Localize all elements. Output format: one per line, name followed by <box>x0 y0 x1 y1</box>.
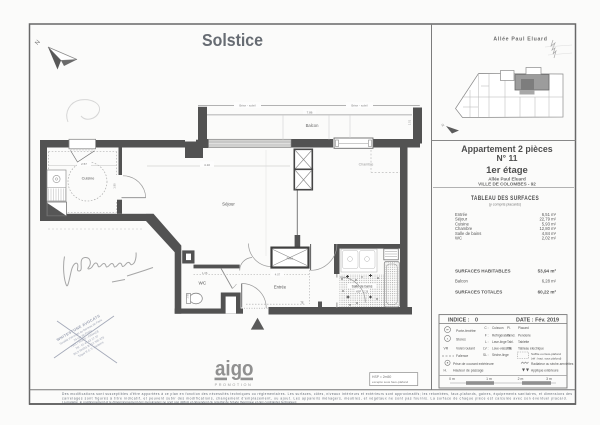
svg-text:DATE : Fév. 2019: DATE : Fév. 2019 <box>516 318 559 324</box>
svg-text:Hauteur de passage: Hauteur de passage <box>453 369 484 373</box>
svg-text:2.57: 2.57 <box>81 162 87 166</box>
svg-text:1er étage: 1er étage <box>486 165 528 176</box>
svg-text:WC: WC <box>199 280 207 285</box>
svg-text:Pend.: Pend. <box>287 257 294 261</box>
svg-text:excepté sous faux-plafond: excepté sous faux-plafond <box>372 380 408 384</box>
svg-text:53,94 m²: 53,94 m² <box>538 269 557 274</box>
svg-text:Tableau électrique: Tableau électrique <box>518 347 544 351</box>
svg-text:Stores: Stores <box>456 338 466 342</box>
svg-text:Lave-linge: Lave-linge <box>492 340 507 344</box>
svg-text:C :: C : <box>484 326 488 330</box>
svg-text:7.86: 7.86 <box>307 111 313 115</box>
svg-text:Salle de bains: Salle de bains <box>352 285 373 289</box>
svg-text:HSP = 2m50: HSP = 2m50 <box>372 375 391 379</box>
svg-text:60,22 m²: 60,22 m² <box>538 290 557 295</box>
svg-text:3 m: 3 m <box>546 377 552 381</box>
svg-text:SURFACES HABITABLES: SURFACES HABITABLES <box>455 269 511 274</box>
svg-text:Sèche-linge: Sèche-linge <box>492 353 509 357</box>
svg-text:Radiateur ou sèche-serviettes: Radiateur ou sèche-serviettes <box>531 362 574 366</box>
svg-text:VILLE DE COLOMBES - 92: VILLE DE COLOMBES - 92 <box>478 181 536 186</box>
svg-text:PROMOTION: PROMOTION <box>215 383 253 387</box>
svg-text:Faïence: Faïence <box>456 354 468 358</box>
svg-text:Solstice: Solstice <box>202 30 263 50</box>
svg-text:TABLEAU DES SURFACES: TABLEAU DES SURFACES <box>471 196 539 202</box>
svg-text:Tabl.: Tabl. <box>507 340 514 344</box>
svg-text:SURFACES TOTALES: SURFACES TOTALES <box>455 290 502 295</box>
svg-text:2 m: 2 m <box>518 377 524 381</box>
svg-text:Balcon: Balcon <box>306 123 319 128</box>
svg-text:1.96: 1.96 <box>186 293 190 299</box>
svg-text:1 m: 1 m <box>486 377 492 381</box>
svg-text:4.07: 4.07 <box>275 273 281 277</box>
svg-text:Allée Paul Eluard: Allée Paul Eluard <box>493 37 547 43</box>
svg-text:Prise de courant extérieure: Prise de courant extérieure <box>453 362 494 366</box>
svg-text:2,02 m²: 2,02 m² <box>542 236 557 241</box>
svg-text:aigo: aigo <box>215 358 254 381</box>
svg-text:Balcon: Balcon <box>455 279 468 284</box>
svg-text:Tablette: Tablette <box>518 340 529 344</box>
svg-text:N° 11: N° 11 <box>497 153 518 163</box>
svg-text:LV :: LV : <box>483 347 489 351</box>
svg-text:VR: VR <box>444 346 449 350</box>
svg-text:Cuisson: Cuisson <box>492 326 504 330</box>
svg-text:0: 0 <box>475 318 478 324</box>
svg-text:H.: H. <box>444 369 447 373</box>
svg-text:F :: F : <box>485 333 489 337</box>
svg-text:(y compris placards): (y compris placards) <box>489 202 521 206</box>
svg-text:Placard: Placard <box>518 326 529 330</box>
svg-text:TE: TE <box>300 301 304 305</box>
svg-text:Cuisine: Cuisine <box>82 177 95 181</box>
svg-text:Séjour: Séjour <box>222 202 235 207</box>
svg-text:Porte-fenêtre: Porte-fenêtre <box>456 329 476 333</box>
svg-text:6,28 m²: 6,28 m² <box>542 279 557 284</box>
svg-text:Brise - soleil: Brise - soleil <box>351 104 368 108</box>
svg-text:Brise - soleil: Brise - soleil <box>239 104 256 108</box>
svg-text:L :: L : <box>485 340 489 344</box>
svg-text:Volet roulant: Volet roulant <box>456 346 475 350</box>
svg-text:TE: TE <box>507 347 511 351</box>
svg-text:Penderie: Penderie <box>518 333 531 337</box>
svg-text:Entrée: Entrée <box>274 285 287 290</box>
svg-text:1.51: 1.51 <box>408 119 412 125</box>
svg-text:Pl.: Pl. <box>507 326 511 330</box>
svg-text:(réf : haut. sous plafond): (réf : haut. sous plafond) <box>531 356 561 360</box>
svg-text:4.10: 4.10 <box>204 163 210 167</box>
svg-text:WC: WC <box>455 236 462 241</box>
svg-text:Applique extérieure: Applique extérieure <box>531 369 559 373</box>
svg-text:La manière, le positionnement: La manière, le positionnement et le dime… <box>62 400 298 404</box>
svg-text:1.90: 1.90 <box>113 183 117 189</box>
svg-text:SL :: SL : <box>483 353 489 357</box>
svg-text:INDICE :: INDICE : <box>448 318 470 324</box>
svg-text:0 m: 0 m <box>449 377 455 381</box>
svg-text:1.06: 1.06 <box>202 271 208 275</box>
svg-text:Pend.: Pend. <box>507 333 515 337</box>
